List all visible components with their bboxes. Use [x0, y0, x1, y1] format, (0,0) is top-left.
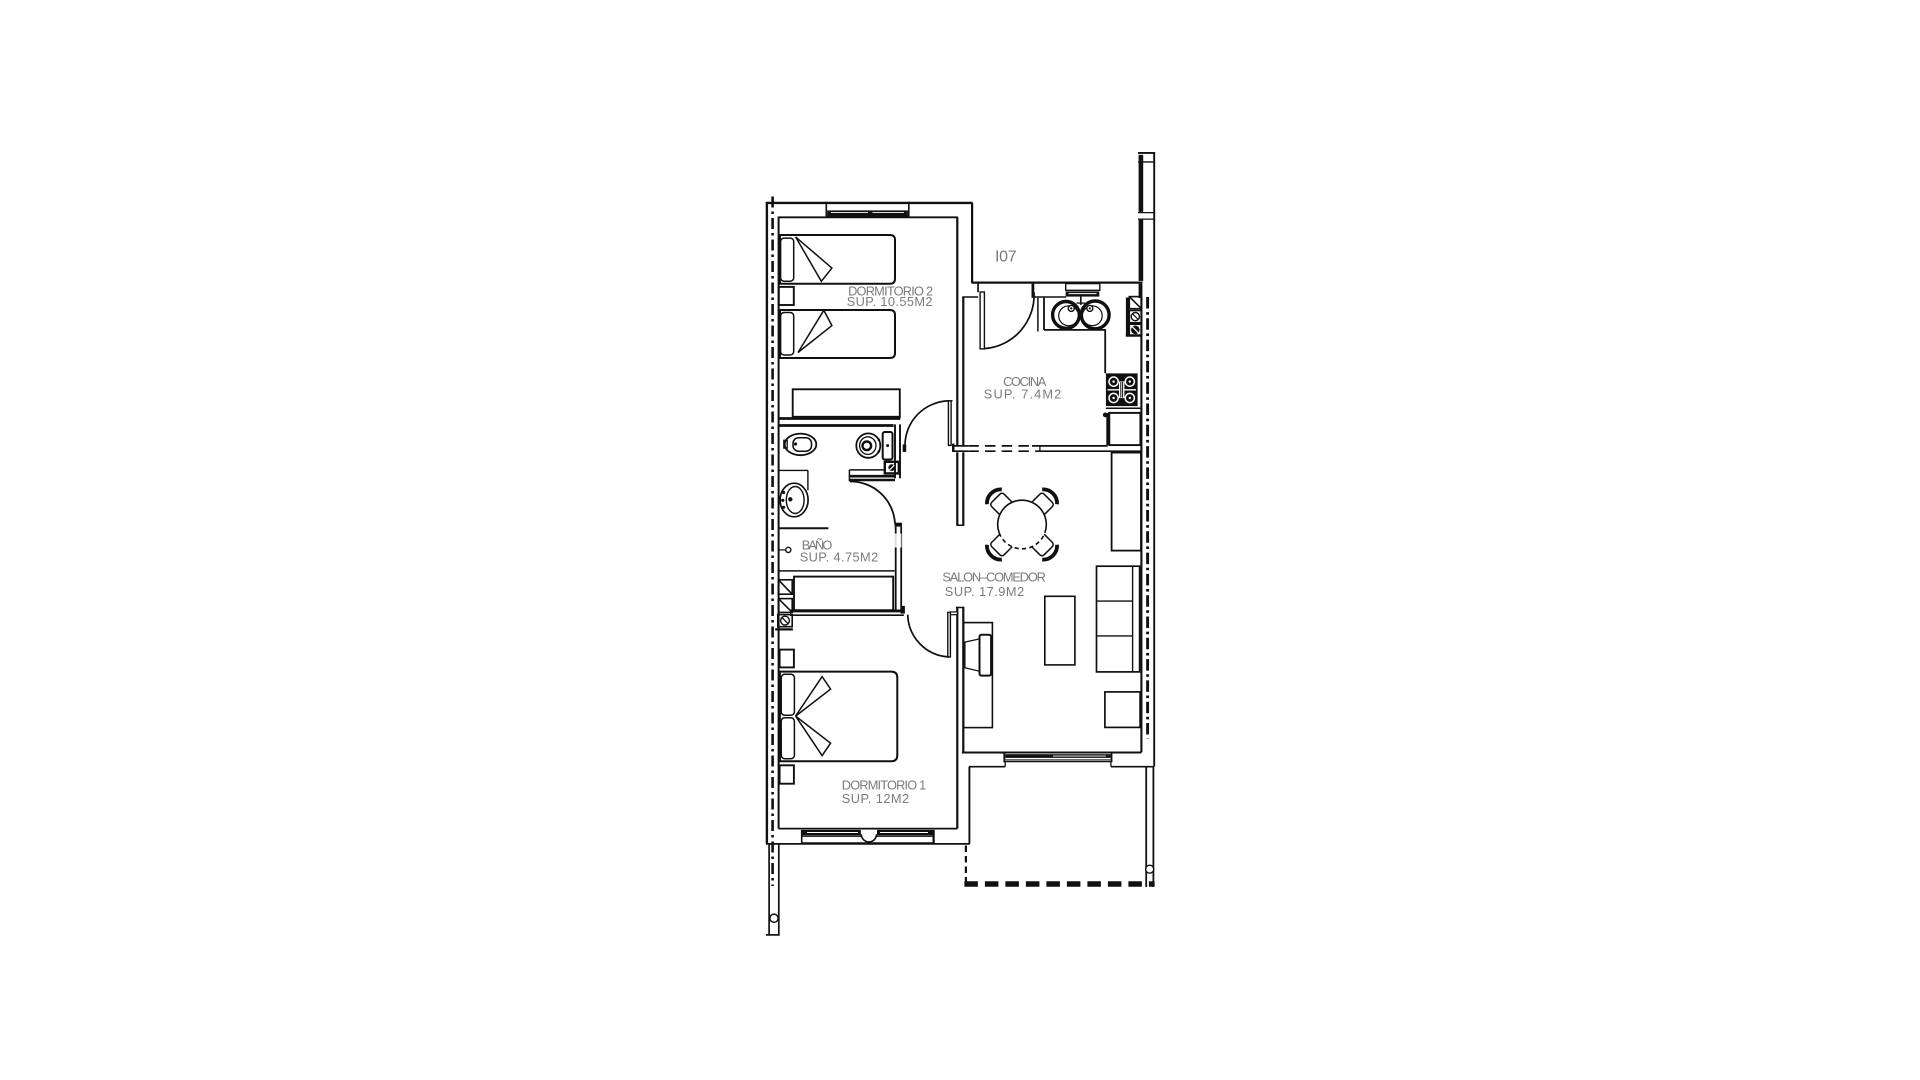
svg-text:SALON–COMEDOR: SALON–COMEDOR	[942, 570, 1046, 585]
svg-text:SUP. 12M2: SUP. 12M2	[842, 791, 909, 806]
svg-text:DORMITORIO 1: DORMITORIO 1	[842, 777, 926, 792]
svg-text:SUP. 7.4M2: SUP. 7.4M2	[984, 386, 1062, 401]
svg-text:SUP. 4.75M2: SUP. 4.75M2	[800, 549, 879, 564]
svg-text:I07: I07	[995, 249, 1017, 266]
svg-text:SUP. 10.55M2: SUP. 10.55M2	[847, 294, 933, 309]
svg-text:SUP. 17.9M2: SUP. 17.9M2	[945, 584, 1024, 599]
